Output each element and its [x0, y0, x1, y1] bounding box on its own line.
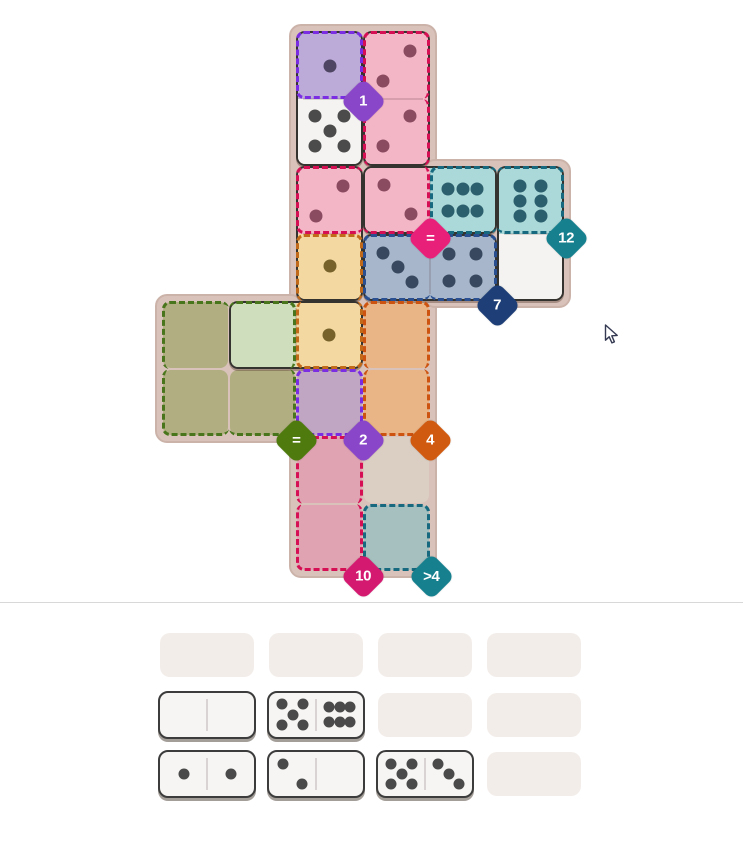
board-domino-0-1[interactable]	[229, 301, 363, 369]
pip	[276, 719, 287, 730]
pip	[277, 758, 288, 769]
tray-slot	[487, 633, 581, 677]
domino-half-6	[316, 693, 363, 737]
pip	[337, 140, 350, 153]
pip	[391, 261, 404, 274]
board-cell-r4c3[interactable]	[364, 302, 429, 368]
pip	[442, 274, 455, 287]
pip	[535, 179, 548, 192]
pip	[513, 194, 526, 207]
domino-half-0	[207, 693, 254, 737]
pip	[178, 769, 189, 780]
tray-slot	[160, 633, 254, 677]
pip	[403, 110, 416, 123]
pip	[470, 274, 483, 287]
domino-half-6	[499, 168, 562, 234]
badge-label: 4	[426, 431, 434, 448]
pip	[323, 260, 336, 273]
domino-half-1	[160, 752, 207, 796]
domino-half-2	[365, 168, 430, 232]
tray-domino-1-1[interactable]	[158, 750, 256, 798]
tray-slot	[487, 693, 581, 737]
pip	[336, 179, 349, 192]
domino-half-1	[298, 234, 361, 300]
pip	[377, 179, 390, 192]
pip	[322, 328, 335, 341]
board-cell-r5c2[interactable]	[297, 370, 362, 436]
tray-domino-0-0[interactable]	[158, 691, 256, 739]
pip	[442, 247, 455, 260]
board-cell-r4c0[interactable]	[163, 302, 228, 368]
domino-half-0	[160, 693, 207, 737]
tray-slot	[269, 633, 363, 677]
pip	[407, 758, 418, 769]
pip	[535, 194, 548, 207]
pip	[309, 140, 322, 153]
badge-label: 12	[558, 230, 574, 247]
tray-slot	[378, 693, 472, 737]
pip	[454, 779, 465, 790]
badge-label: 1	[359, 92, 367, 109]
domino-half-0	[231, 303, 296, 367]
pip	[441, 204, 454, 217]
pip	[456, 204, 469, 217]
pip	[287, 709, 298, 720]
pip	[309, 110, 322, 123]
pip	[535, 209, 548, 222]
pip	[345, 716, 356, 727]
pip	[385, 779, 396, 790]
domino-half-2	[269, 752, 316, 796]
pip	[310, 209, 323, 222]
pip	[323, 59, 336, 72]
pip	[345, 702, 356, 713]
pip	[441, 182, 454, 195]
domino-half-1	[207, 752, 254, 796]
pip	[456, 182, 469, 195]
pip	[403, 44, 416, 57]
pip	[405, 208, 418, 221]
badge-label: =	[292, 432, 300, 449]
pip	[513, 179, 526, 192]
pip	[225, 769, 236, 780]
pip	[276, 699, 287, 710]
domino-half-6	[430, 168, 495, 232]
pip	[323, 125, 336, 138]
board-cell-r7c3[interactable]	[364, 505, 429, 571]
domino-half-0	[316, 752, 363, 796]
pip	[334, 716, 345, 727]
badge-label: 7	[493, 296, 501, 313]
tray-domino-5-3[interactable]	[376, 750, 474, 798]
pip	[376, 246, 389, 259]
badge-label: 2	[359, 431, 367, 448]
domino-half-5	[269, 693, 316, 737]
badge-label: =	[426, 230, 434, 247]
pip	[377, 140, 390, 153]
pip	[471, 182, 484, 195]
pip	[470, 247, 483, 260]
mouse-cursor	[604, 324, 624, 348]
board-cell-r7c2[interactable]	[297, 505, 362, 571]
tray-domino-5-6[interactable]	[267, 691, 365, 739]
pip	[471, 204, 484, 217]
pip	[513, 209, 526, 222]
pip	[297, 779, 308, 790]
pip	[298, 699, 309, 710]
pip	[407, 779, 418, 790]
badge-label: 10	[355, 568, 371, 585]
tray-divider-line	[0, 602, 743, 603]
pip	[323, 702, 334, 713]
board-cell-r5c0[interactable]	[163, 370, 228, 436]
badge-label: >4	[423, 567, 440, 584]
pip	[432, 758, 443, 769]
game-stage: 1=127=2410>4	[0, 0, 743, 853]
domino-half-1	[296, 303, 361, 367]
board-cell-r5c1[interactable]	[230, 370, 295, 436]
board-cell-r5c3[interactable]	[364, 370, 429, 436]
pip	[334, 702, 345, 713]
tray-domino-2-0[interactable]	[267, 750, 365, 798]
pip	[323, 716, 334, 727]
pip	[377, 74, 390, 87]
pip	[443, 769, 454, 780]
tray-slot	[378, 633, 472, 677]
pip	[337, 110, 350, 123]
domino-half-3	[425, 752, 472, 796]
domino-half-5	[378, 752, 425, 796]
pip	[406, 275, 419, 288]
tray-slot	[487, 752, 581, 796]
pip	[385, 758, 396, 769]
domino-half-2	[298, 168, 361, 234]
board-domino-2-1[interactable]	[296, 166, 363, 301]
pip	[298, 719, 309, 730]
pip	[396, 769, 407, 780]
